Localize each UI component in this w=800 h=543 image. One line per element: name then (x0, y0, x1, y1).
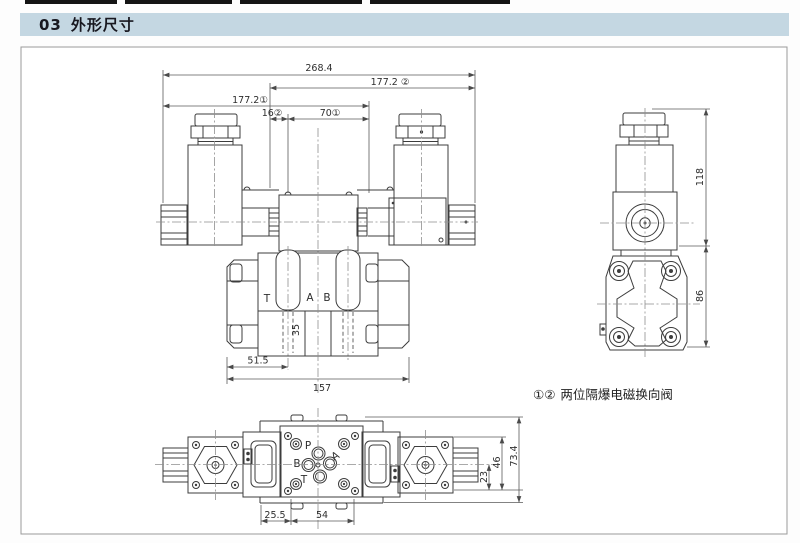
port-label-b: B (323, 292, 330, 304)
dim-177-2-right: 177.2 ② (371, 77, 410, 88)
dim-268-4: 268.4 (305, 63, 332, 74)
dim-157: 157 (313, 383, 331, 394)
port-label-a: A (306, 292, 314, 304)
dim-118: 118 (695, 168, 706, 186)
port-label-b: B (293, 458, 300, 470)
dim-23: 23 (479, 471, 490, 483)
caption-text: 两位隔爆电磁换向阀 (560, 387, 673, 402)
port-label-t: T (300, 474, 308, 486)
dim-35: 35 (291, 324, 302, 336)
catalog-page: 03 外形尺寸 (0, 0, 800, 543)
dim-73-4: 73.4 (509, 445, 520, 466)
dim-16: 16② (262, 108, 283, 119)
dim-25-5: 25.5 (264, 510, 285, 521)
port-label-p: P (305, 440, 311, 452)
scan-artifact (25, 0, 510, 4)
dim-177-2-left: 177.2① (232, 95, 268, 106)
port-label-t: T (263, 293, 271, 305)
figure-caption: ①②两位隔爆电磁换向阀 (533, 387, 673, 402)
caption-marks: ①② (533, 387, 555, 402)
dimension-drawing: 268.4 177.2 ② 177.2① 16② 70① (0, 0, 800, 543)
drawing-frame (21, 47, 787, 534)
dim-70: 70① (320, 108, 341, 119)
dim-54: 54 (316, 510, 328, 521)
dim-51-5: 51.5 (247, 356, 268, 367)
dim-86: 86 (695, 290, 706, 302)
dim-46: 46 (492, 456, 503, 468)
